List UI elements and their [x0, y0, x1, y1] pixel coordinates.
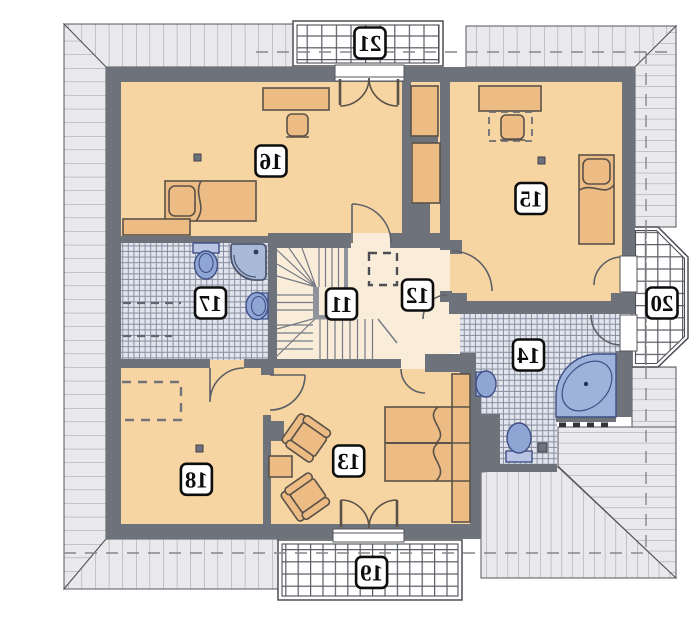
svg-text:13: 13: [337, 449, 360, 474]
svg-text:21: 21: [359, 31, 382, 56]
svg-text:19: 19: [360, 560, 383, 585]
svg-text:15: 15: [520, 187, 543, 212]
svg-text:11: 11: [331, 292, 353, 317]
svg-text:16: 16: [260, 149, 283, 174]
svg-text:17: 17: [199, 291, 222, 316]
svg-text:12: 12: [406, 283, 429, 308]
svg-text:20: 20: [651, 291, 674, 316]
svg-text:14: 14: [517, 343, 541, 368]
svg-text:18: 18: [185, 467, 208, 492]
